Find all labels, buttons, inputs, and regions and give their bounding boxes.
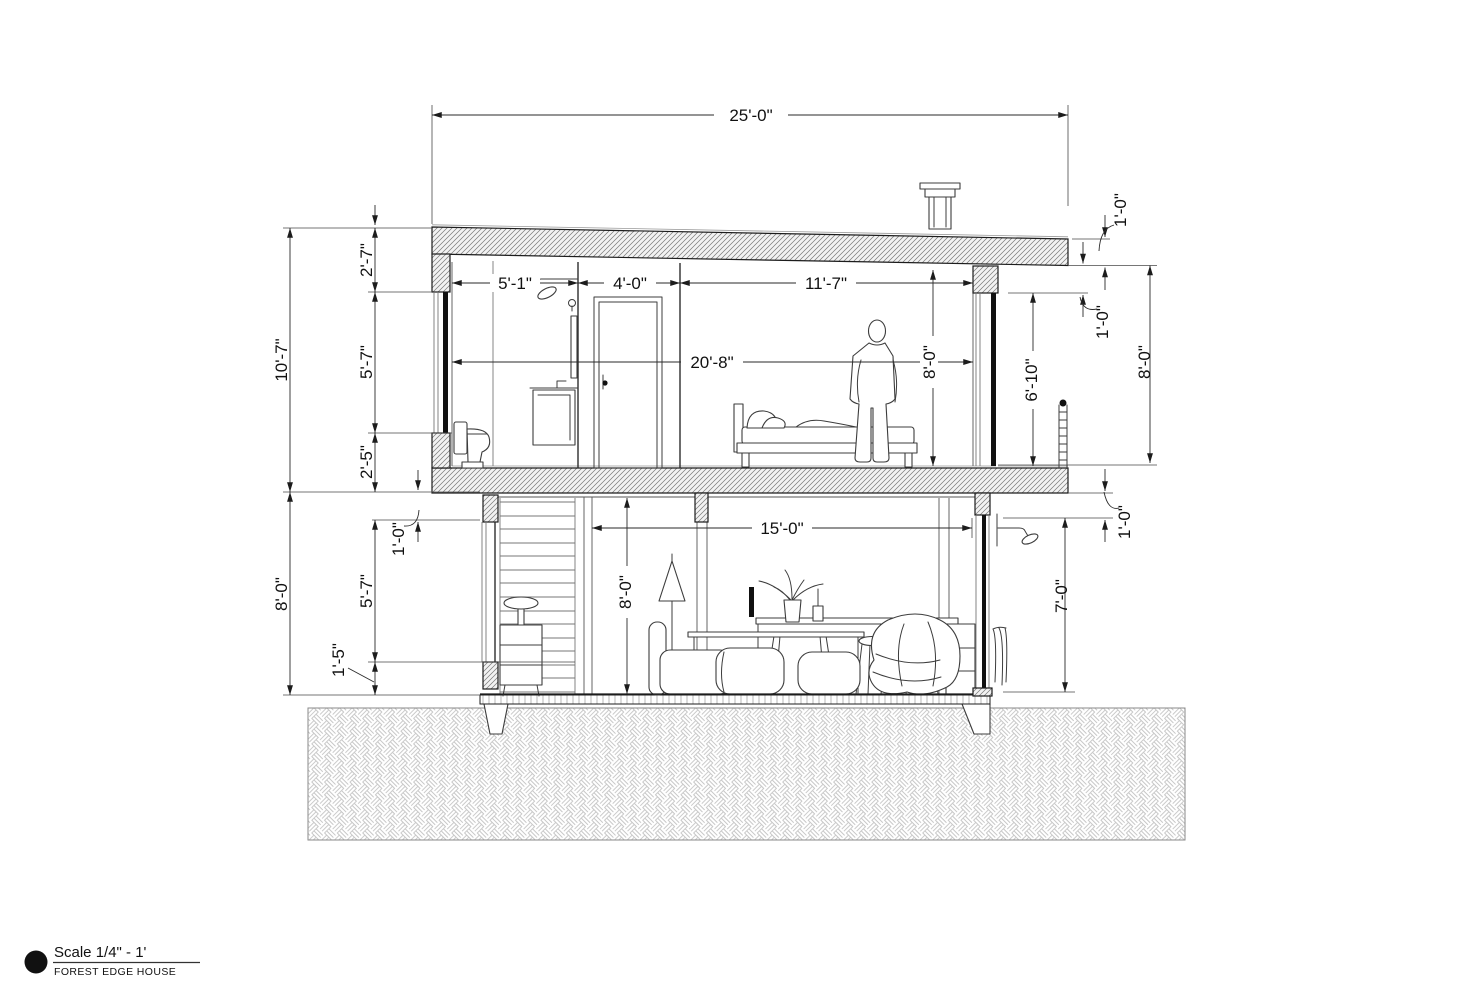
- dim-lower-interior-height-label: 8'-0": [616, 575, 635, 609]
- dim-bath-width-label: 5'-1": [498, 274, 532, 293]
- dim-upper-window-height: 5'-7": [357, 345, 376, 379]
- dim-lower-head-drop-label: 1'-0": [389, 522, 408, 556]
- lower-left-wall: [482, 495, 498, 689]
- dim-overall-width-label: 25'-0": [729, 106, 772, 125]
- dining-chair-right: [798, 652, 860, 694]
- dim-lower-total-height-label: 8'-0": [272, 577, 291, 611]
- shower-head: [536, 279, 578, 311]
- left-window-glazing: [434, 292, 438, 433]
- dim-lower-interior-height: 8'-0": [616, 566, 635, 618]
- dim-lower-head-drop: 1'-0": [389, 522, 408, 556]
- dim-closet-width-label: 4'-0": [613, 274, 647, 293]
- scale-label: Scale 1/4" - 1': [54, 944, 147, 961]
- door: [594, 297, 662, 468]
- dim-upper-sill: 2'-5": [357, 445, 376, 479]
- dim-lower-total-height: 8'-0": [272, 577, 291, 611]
- vanity: [530, 381, 578, 445]
- ceiling-beam-stubs: [695, 493, 708, 522]
- dimension-labels: 25'-0" 10'-7" 8'-0" 2'-7" 5'-7" 2'-5" 1'…: [272, 106, 1154, 677]
- dim-lower-window-height-label: 5'-7": [357, 574, 376, 608]
- lower-floor: [480, 497, 1007, 696]
- stair-wall: [584, 497, 592, 694]
- dim-bath-width: 5'-1": [490, 274, 540, 293]
- dim-lower-window-height: 5'-7": [357, 574, 376, 608]
- architectural-section-sheet: 25'-0" 10'-7" 8'-0" 2'-7" 5'-7" 2'-5" 1'…: [0, 0, 1474, 1000]
- right-window-glazing: [976, 293, 980, 466]
- dim-roof-edge-thickness: 1'-0": [1111, 193, 1130, 227]
- dim-right-window-height-label: 6'-10": [1022, 358, 1041, 401]
- project-name: FOREST EDGE HOUSE: [54, 966, 176, 978]
- dining-chair-left: [716, 648, 784, 694]
- dim-upper-interior-height: 8'-0": [920, 336, 939, 388]
- dim-floor-edge-thickness-label: 1'-0": [1115, 505, 1134, 539]
- outdoor-shower: [997, 514, 1039, 546]
- bed: [734, 404, 917, 467]
- leader-lower-sill: [348, 668, 374, 682]
- mirror: [571, 316, 577, 378]
- dim-floor-edge-thickness: 1'-0": [1115, 505, 1134, 539]
- left-parapet: [432, 254, 450, 292]
- floor-slab: [432, 468, 1068, 493]
- dim-outdoor-shower-height: 7'-0": [1052, 579, 1071, 613]
- right-wall-upper: [973, 266, 998, 466]
- chimney: [920, 183, 960, 229]
- kitchen-fixture: [749, 587, 754, 617]
- dim-bedroom-width-label: 11'-7": [805, 274, 847, 293]
- dim-roof-to-window-head: 1'-0": [1093, 305, 1112, 339]
- dim-right-window-height: 6'-10": [1022, 351, 1041, 409]
- dim-upper-total-height: 10'-7": [272, 338, 291, 381]
- dim-overall-width: 25'-0": [714, 106, 788, 125]
- dim-upper-parapet: 2'-7": [357, 243, 376, 277]
- left-sill-wall: [432, 433, 450, 468]
- ground-hatch: [308, 708, 1185, 840]
- side-cabinet: [500, 625, 542, 696]
- toilet: [454, 422, 490, 468]
- dim-upper-interior-height-label: 8'-0": [920, 345, 939, 379]
- dim-lower-interior-width: 15'-0": [752, 519, 812, 538]
- ladder: [1059, 400, 1067, 468]
- stool: [504, 597, 538, 626]
- leader-roof-edge: [1099, 225, 1114, 251]
- dim-bedroom-width: 11'-7": [796, 274, 856, 293]
- sheet-marker-dot: [25, 951, 48, 974]
- dim-right-exterior-height-label: 8'-0": [1135, 345, 1154, 379]
- right-window-mullion: [991, 293, 996, 466]
- dim-lower-sill: 1'-5": [329, 643, 348, 677]
- left-window-mullion: [443, 292, 448, 433]
- dim-lower-interior-width-label: 15'-0": [760, 519, 803, 538]
- dim-lower-sill-label: 1'-5": [329, 643, 348, 677]
- ground-slab: [480, 695, 990, 704]
- dim-right-exterior-height: 8'-0": [1135, 345, 1154, 379]
- title-block: Scale 1/4" - 1' FOREST EDGE HOUSE: [25, 944, 201, 978]
- hanging-towel: [993, 627, 1007, 685]
- roof-slab: [432, 227, 1068, 266]
- dim-upper-parapet-label: 2'-7": [357, 243, 376, 277]
- dim-outdoor-shower-height-label: 7'-0": [1052, 579, 1071, 613]
- dim-upper-interior-width-label: 20'-8": [690, 353, 733, 372]
- dim-closet-width: 4'-0": [604, 274, 656, 293]
- dim-roof-edge-thickness-label: 1'-0": [1111, 193, 1130, 227]
- section-drawing: 25'-0" 10'-7" 8'-0" 2'-7" 5'-7" 2'-5" 1'…: [0, 0, 1474, 1000]
- dim-upper-window-height-label: 5'-7": [357, 345, 376, 379]
- left-wall: [432, 254, 450, 468]
- dim-roof-to-window-head-label: 1'-0": [1093, 305, 1112, 339]
- lower-right-wall: [973, 493, 992, 696]
- lounge-chair: [869, 614, 960, 694]
- dim-upper-interior-width: 20'-8": [681, 353, 743, 372]
- dim-upper-total-height-label: 10'-7": [272, 338, 291, 381]
- blanket: [796, 420, 856, 427]
- candle: [813, 589, 823, 621]
- dim-upper-sill-label: 2'-5": [357, 445, 376, 479]
- right-beam: [973, 266, 998, 293]
